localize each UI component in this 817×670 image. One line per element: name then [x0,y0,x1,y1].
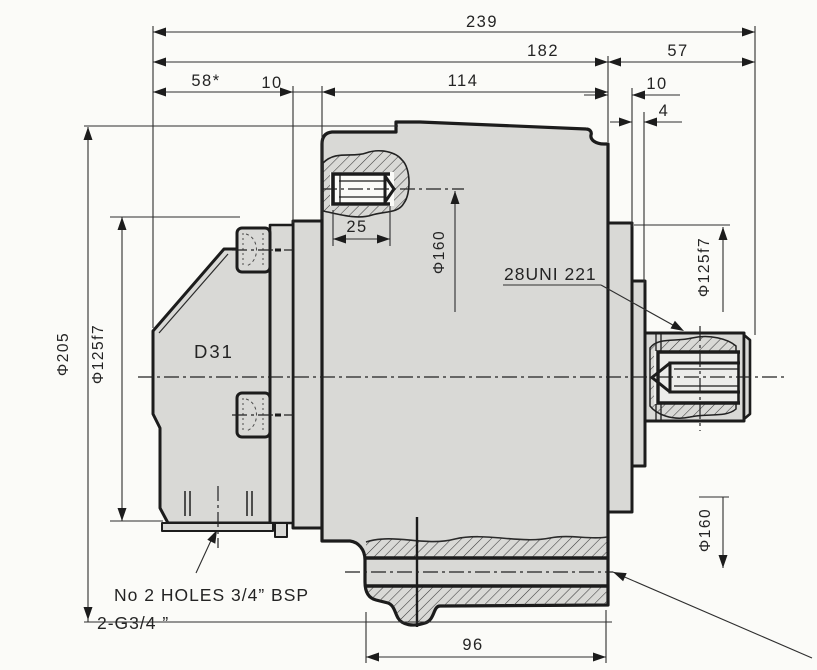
top-port-section [323,151,409,217]
dim-10-right-label: 10 [646,75,667,93]
dia-125f7-left-label: Φ125f7 [90,324,107,384]
dim-57-label: 57 [667,42,688,60]
dim-96-label: 96 [462,636,483,654]
pilot-spigot-inner [270,225,293,523]
flange-size-label: D31 [194,341,234,362]
dim-25-label: 25 [346,218,367,236]
spline-spec-label: 28UNI 221 [504,264,597,284]
flange-bottom-tab [275,523,287,537]
pilot-spigot-outer [293,221,322,528]
dim-114-label: 114 [448,72,479,90]
dia-160-bottom-label: Φ160 [697,508,714,552]
port-note-line1: No 2 HOLES 3/4” BSP [114,585,309,605]
dim-58-label: 58* [191,72,220,90]
rear-cover-step1 [608,223,632,512]
port-note-line2: 2-G3/4 ” [97,613,169,633]
dim-182-label: 182 [527,42,559,60]
dia-205-label: Φ205 [55,332,72,376]
dia-160-top-label: Φ160 [431,230,448,274]
dim-239-label: 239 [466,13,498,31]
dia-125f7-right-label: Φ125f7 [696,237,713,297]
motor-section-drawing: 239 182 57 58* 10 114 10 4 25 96 Φ205 Φ1… [0,0,817,670]
technical-drawing-page: 239 182 57 58* 10 114 10 4 25 96 Φ205 Φ1… [0,0,817,670]
dim-10-left-label: 10 [261,74,282,92]
dim-4-label: 4 [659,102,670,120]
